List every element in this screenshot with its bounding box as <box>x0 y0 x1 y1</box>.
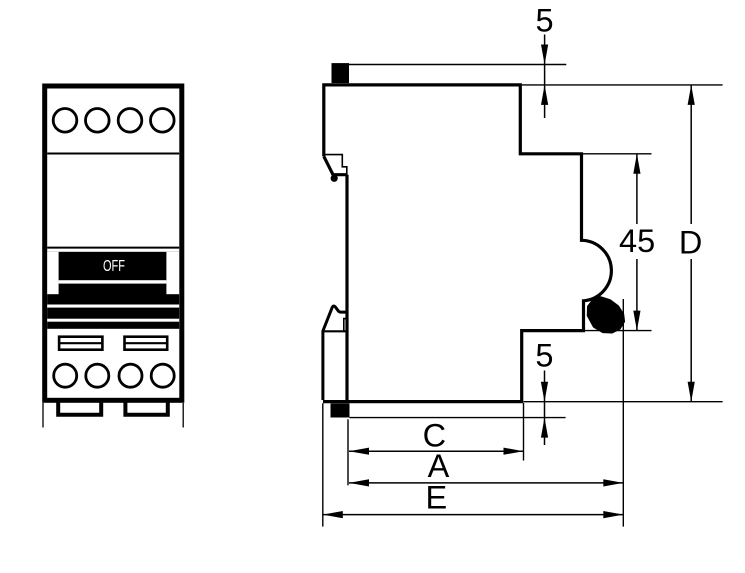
svg-text:E: E <box>426 479 448 515</box>
svg-text:5: 5 <box>536 3 554 39</box>
svg-text:45: 45 <box>619 223 655 259</box>
svg-text:D: D <box>679 224 702 260</box>
svg-text:OFF: OFF <box>103 258 125 275</box>
svg-text:5: 5 <box>535 337 553 373</box>
